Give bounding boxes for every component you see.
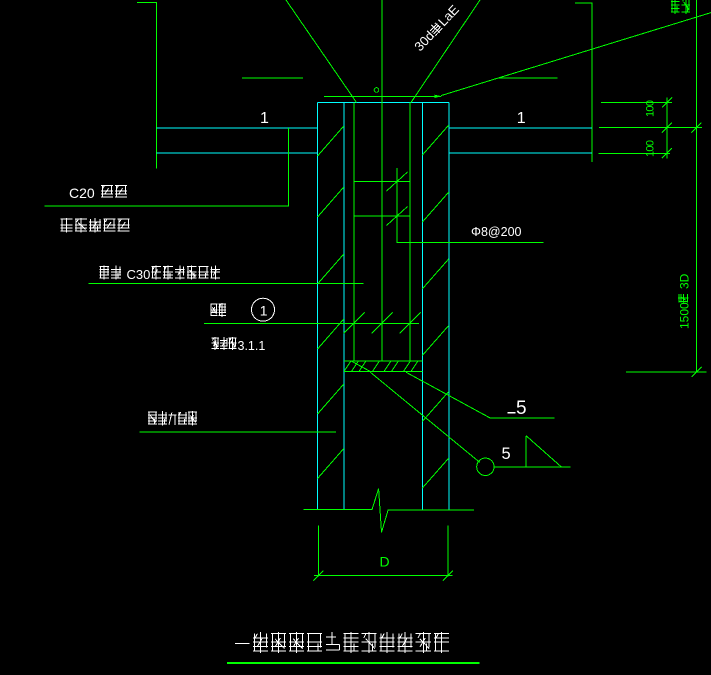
svg-text:Φ8@200: Φ8@200 [471, 225, 522, 239]
svg-text:C20: C20 [69, 185, 95, 201]
svg-text:1: 1 [517, 110, 526, 127]
svg-text:100: 100 [645, 100, 657, 117]
svg-text:5: 5 [502, 445, 511, 463]
svg-text:1: 1 [260, 303, 268, 319]
svg-text:3D: 3D [678, 273, 692, 289]
svg-text:C30: C30 [127, 267, 151, 282]
svg-text:3.1.1: 3.1.1 [238, 339, 266, 353]
svg-text:100: 100 [645, 140, 657, 157]
svg-text:5: 5 [516, 398, 527, 419]
svg-text:1: 1 [260, 110, 269, 127]
svg-text:1500: 1500 [678, 302, 692, 329]
svg-text:D: D [380, 554, 390, 570]
